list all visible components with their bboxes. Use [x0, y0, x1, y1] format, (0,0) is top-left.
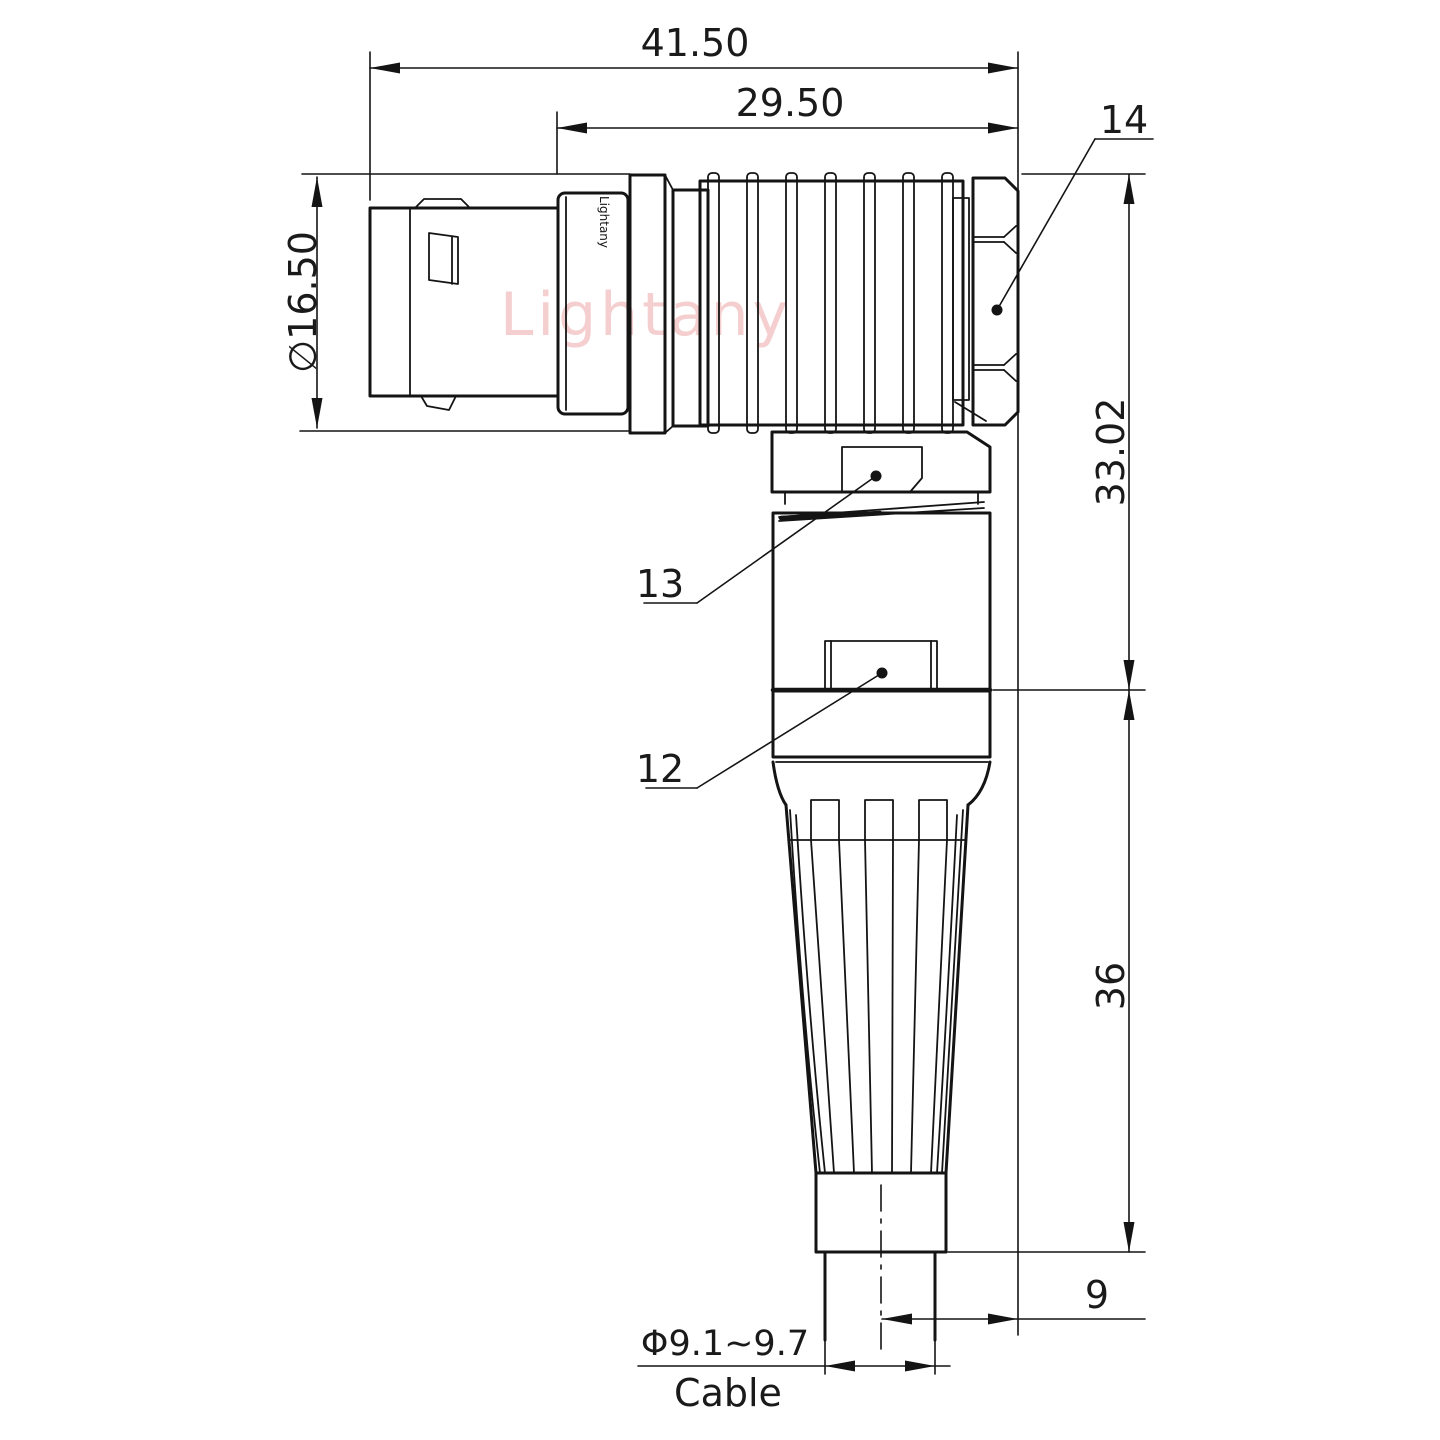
- leader-bushing: 12: [636, 668, 888, 792]
- arrowhead-left: [825, 1361, 855, 1372]
- dim-cable-diameter-text: Φ9.1~9.7: [641, 1324, 809, 1364]
- dimension-body-length: 29.50: [557, 81, 1018, 174]
- arrowhead-down: [1124, 660, 1135, 690]
- part-label-bushing: 12: [636, 747, 684, 791]
- hex-facet-chamfer: [1004, 354, 1016, 365]
- arrowhead-left: [882, 1314, 912, 1325]
- boot-flute: [911, 840, 919, 1173]
- grip-rib: [825, 173, 836, 433]
- leader-line: [697, 476, 876, 603]
- gland-nut-block: [772, 432, 990, 492]
- rear-step: [953, 198, 969, 400]
- arrowhead-up: [312, 177, 323, 207]
- grip-rib: [864, 173, 875, 433]
- dimension-overall-length: 41.50: [370, 21, 1018, 1335]
- sleeve-engraving: Lightany: [597, 196, 611, 248]
- watermark-text: Lightany: [500, 280, 792, 350]
- arrowhead-up: [1124, 690, 1135, 720]
- arrowhead-right: [905, 1361, 935, 1372]
- dim-height-lower-text: 36: [1089, 962, 1133, 1010]
- elbow-body: [772, 432, 990, 805]
- body-cylinder: [773, 513, 990, 690]
- boot-tab: [865, 800, 893, 840]
- arrowhead-down: [312, 398, 323, 428]
- hex-facet-chamfer: [1004, 370, 1016, 381]
- connector-technical-drawing: Lightany Lightany: [0, 0, 1440, 1440]
- boot-flute: [892, 840, 893, 1173]
- shoulder-right: [968, 762, 990, 805]
- boot-flute: [865, 840, 872, 1173]
- dim-body-length-text: 29.50: [736, 81, 845, 125]
- cable-label-text: Cable: [674, 1371, 782, 1415]
- leader-line: [997, 139, 1095, 310]
- part-label-gland-nut: 13: [636, 562, 684, 606]
- technical-drawing-page: Lightany Lightany: [0, 0, 1440, 1440]
- plug-bottom-notch: [421, 396, 456, 410]
- cable: [825, 1185, 935, 1374]
- strain-relief-boot: [786, 800, 968, 1252]
- boot-tab: [811, 800, 839, 840]
- rear-step-chamfer: [955, 402, 986, 421]
- hex-facet-chamfer: [1004, 226, 1016, 237]
- gland-nut-flat: [842, 447, 922, 492]
- bushing-section: [773, 691, 990, 757]
- arrowhead-left: [370, 63, 400, 74]
- dim-overall-length-text: 41.50: [641, 21, 750, 65]
- arrowhead-down: [1124, 1222, 1135, 1252]
- boot-right-edge: [946, 805, 968, 1173]
- boot-tab: [919, 800, 947, 840]
- bushing-flat: [825, 641, 937, 690]
- shoulder-left: [773, 762, 786, 805]
- dimension-height-lower: 36: [948, 690, 1145, 1252]
- grip-rib: [942, 173, 953, 433]
- hex-backnut: [973, 178, 1018, 425]
- dimension-height-upper: 33.02: [993, 174, 1145, 690]
- arrowhead-right: [988, 63, 1018, 74]
- dim-height-upper-text: 33.02: [1089, 398, 1133, 507]
- boot-flute: [839, 840, 854, 1173]
- hex-facet-chamfer: [1004, 242, 1016, 253]
- arrowhead-right: [988, 1314, 1018, 1325]
- grip-rib: [903, 173, 914, 433]
- plug-window: [429, 233, 458, 284]
- dimension-cable-diameter: Φ9.1~9.7 Cable: [638, 1324, 950, 1415]
- arrowhead-left: [557, 123, 587, 134]
- arrowhead-up: [1124, 174, 1135, 204]
- arrowhead-right: [988, 123, 1018, 134]
- dimension-axis-offset: 9: [882, 1273, 1145, 1325]
- boot-silhouette-line: [790, 810, 820, 1173]
- dim-axis-offset-text: 9: [1085, 1273, 1109, 1317]
- dim-shell-diameter-text: ∅16.50: [281, 231, 325, 373]
- part-label-backnut: 14: [1100, 98, 1148, 142]
